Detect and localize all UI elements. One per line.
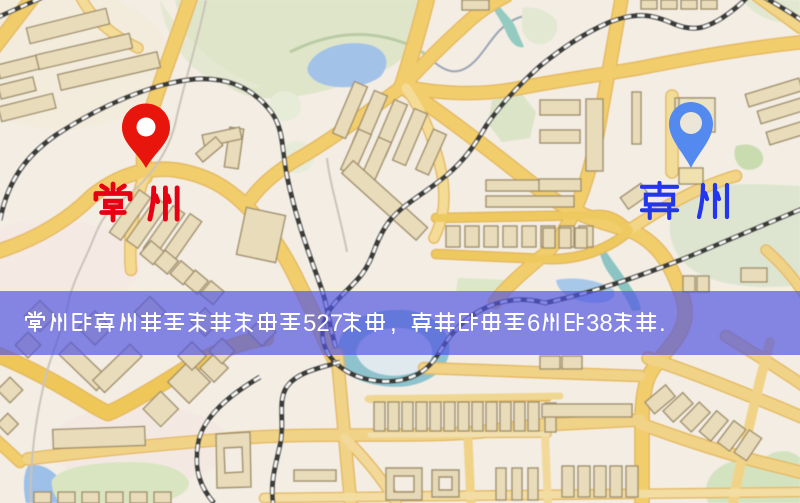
svg-text:527: 527 (303, 310, 343, 337)
svg-text:.: . (659, 310, 666, 337)
svg-text:38: 38 (586, 310, 613, 337)
svg-text:,: , (390, 310, 397, 337)
svg-text:6: 6 (527, 310, 540, 337)
